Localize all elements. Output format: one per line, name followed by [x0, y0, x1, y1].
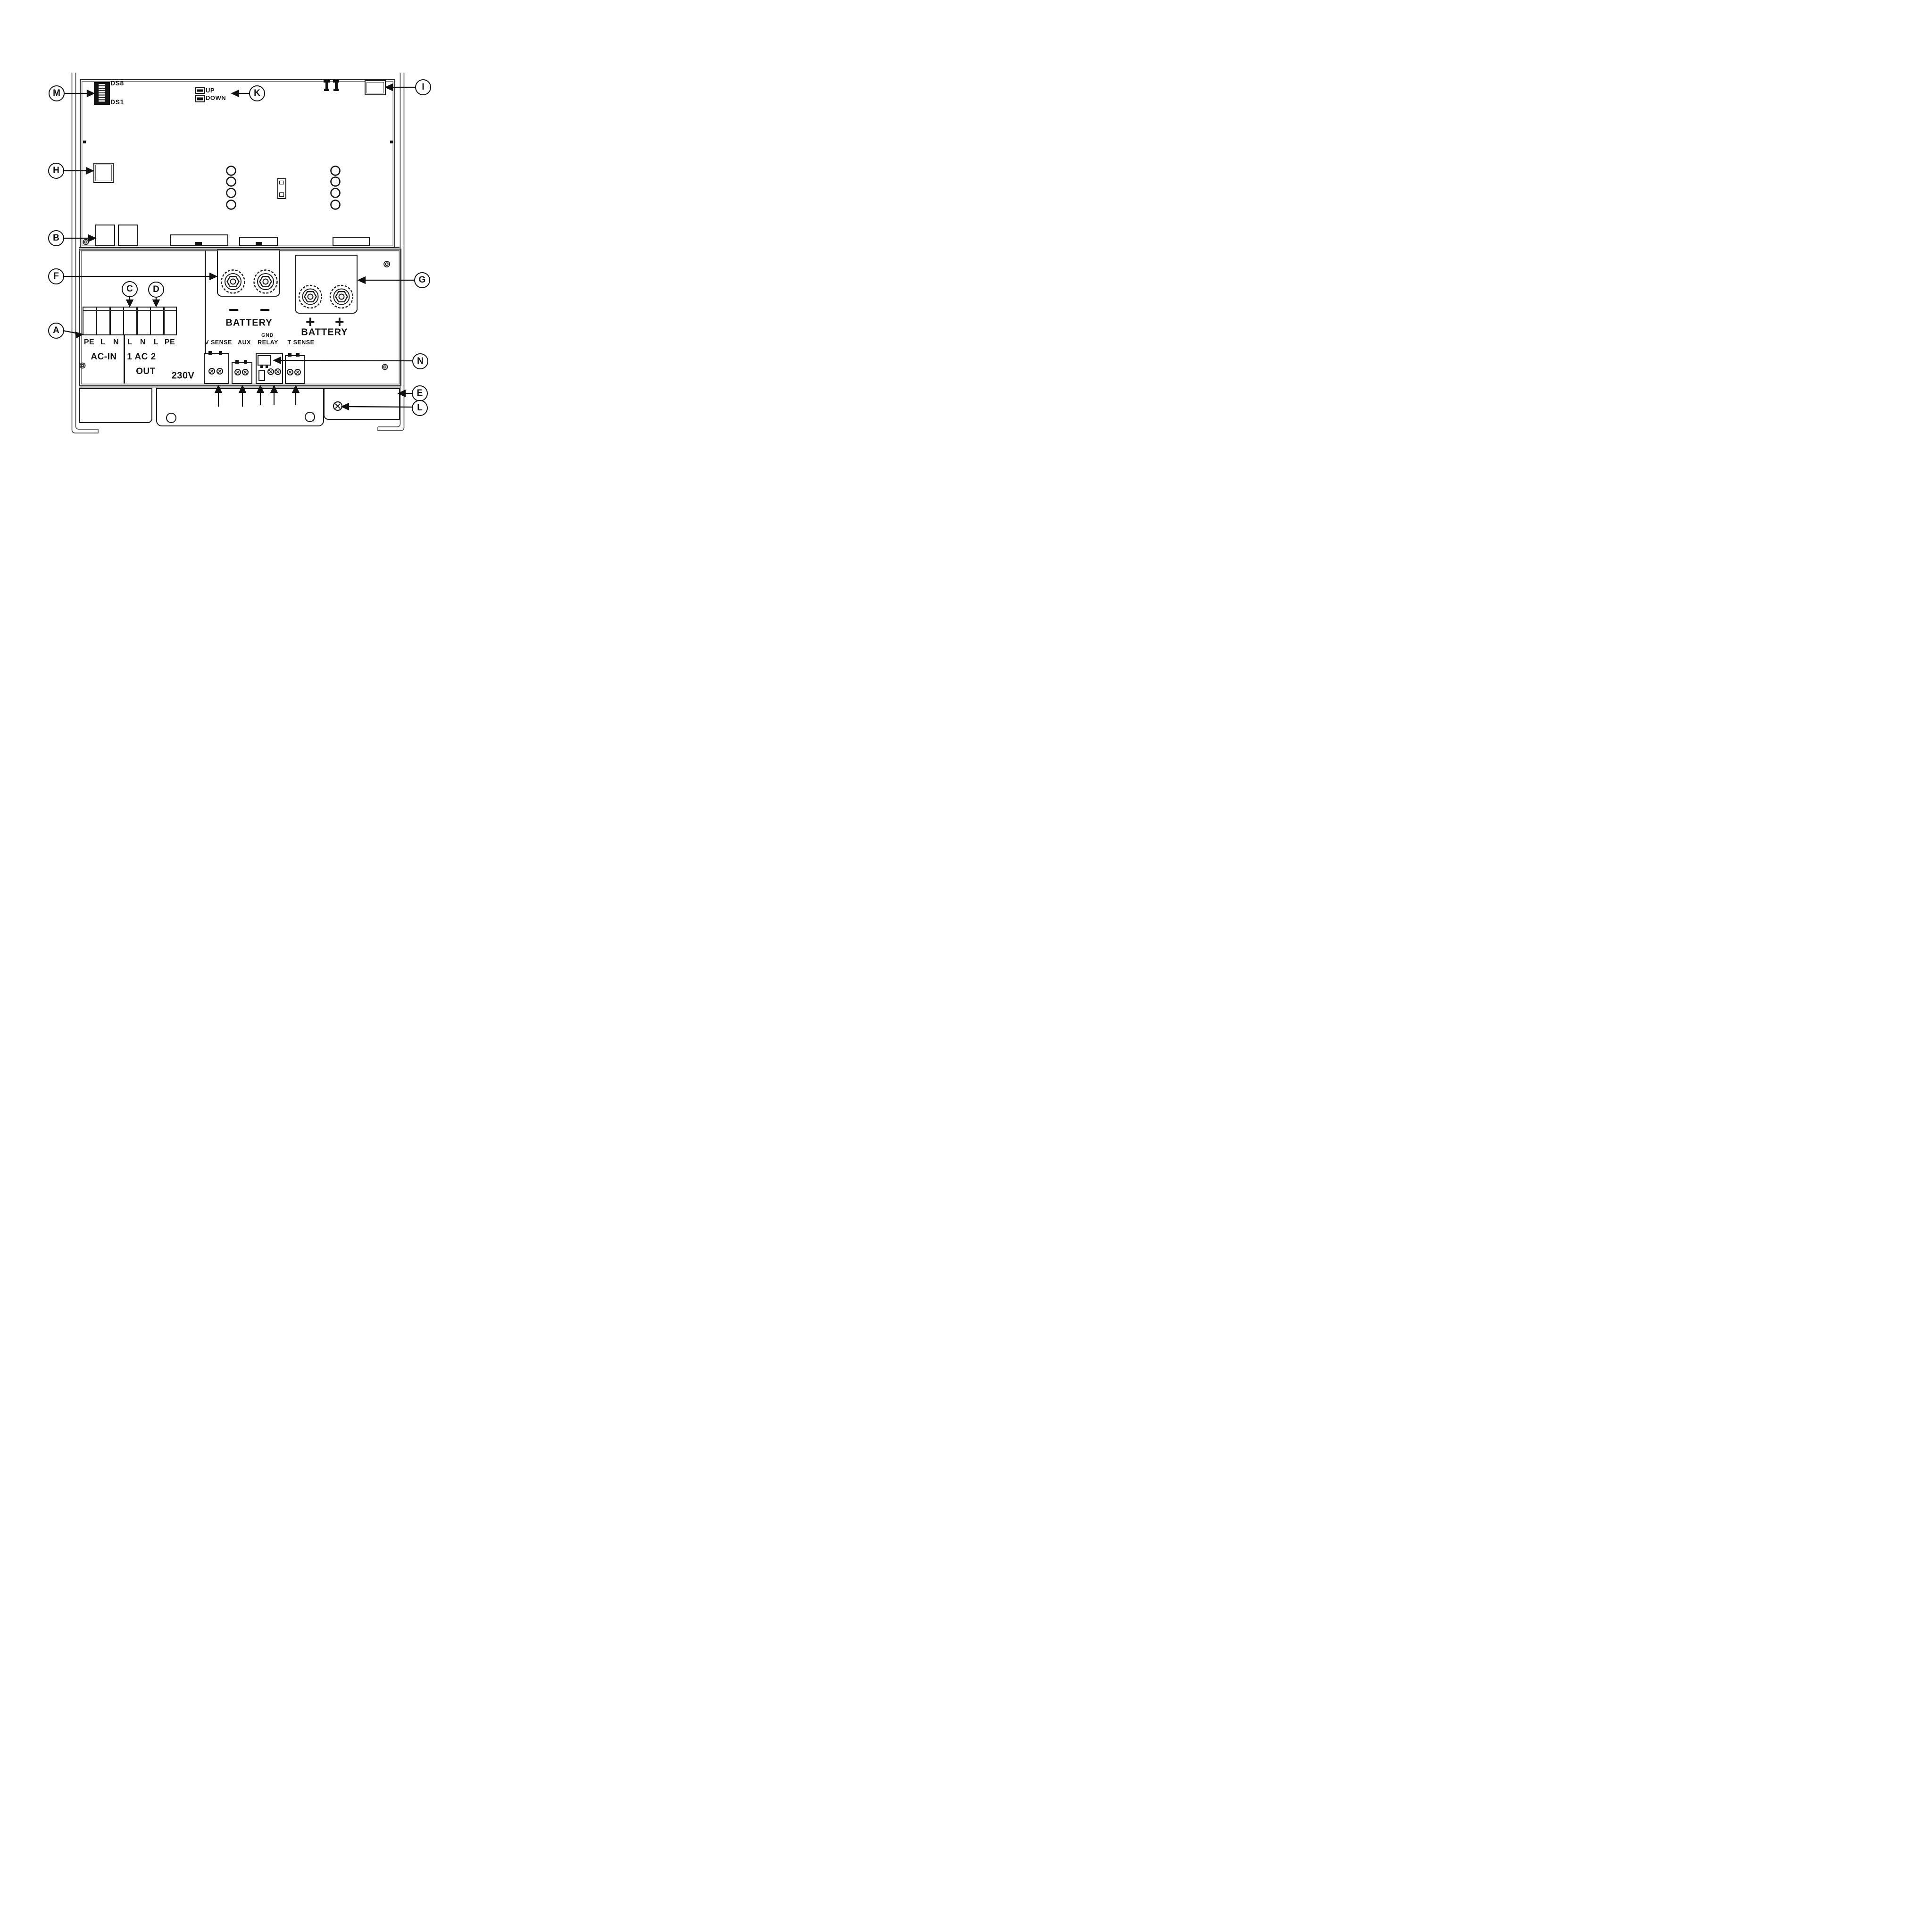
voltage-label: 230V: [172, 371, 195, 382]
terminal-label: PE: [84, 338, 94, 347]
up-label: UP: [206, 87, 215, 94]
aux-label: AUX: [238, 339, 251, 346]
callout-i: I: [415, 79, 431, 95]
relay-label: RELAY: [258, 339, 278, 346]
dip-top-label: DS8: [110, 79, 124, 87]
callout-m: M: [49, 85, 65, 101]
callout-f: F: [48, 268, 64, 284]
callout-a: A: [48, 323, 64, 339]
v-sense-label: V SENSE: [205, 339, 232, 346]
t-sense-label: T SENSE: [288, 339, 315, 346]
battery-negative-label: BATTERY: [225, 318, 272, 329]
terminal-label: PE: [165, 338, 175, 347]
terminal-label: N: [140, 338, 146, 347]
terminal-label: L: [154, 338, 158, 347]
callout-e: E: [412, 385, 428, 401]
callout-c: C: [122, 281, 138, 297]
callout-h: H: [48, 163, 64, 179]
ac-in-label: AC-IN: [91, 352, 117, 362]
callout-g: G: [414, 272, 430, 288]
callout-b: B: [48, 230, 64, 246]
ac-out-label2: OUT: [136, 366, 156, 377]
callout-n: N: [412, 353, 428, 369]
terminal-label: N: [113, 338, 119, 347]
gnd-label: GND: [261, 333, 274, 338]
terminal-label: L: [100, 338, 105, 347]
callout-l: L: [412, 400, 428, 416]
down-label: DOWN: [206, 94, 226, 101]
ac-out-label: 1 AC 2: [127, 352, 156, 362]
callout-d: D: [148, 282, 164, 298]
ups-board-wiring-diagram: DS8 DS1 UP DOWN PE L N L N L PE AC-IN 1 …: [0, 0, 483, 483]
battery-positive-label: BATTERY: [301, 327, 348, 338]
dip-bottom-label: DS1: [110, 98, 124, 106]
terminal-label: L: [127, 338, 132, 347]
callout-k: K: [249, 85, 265, 101]
